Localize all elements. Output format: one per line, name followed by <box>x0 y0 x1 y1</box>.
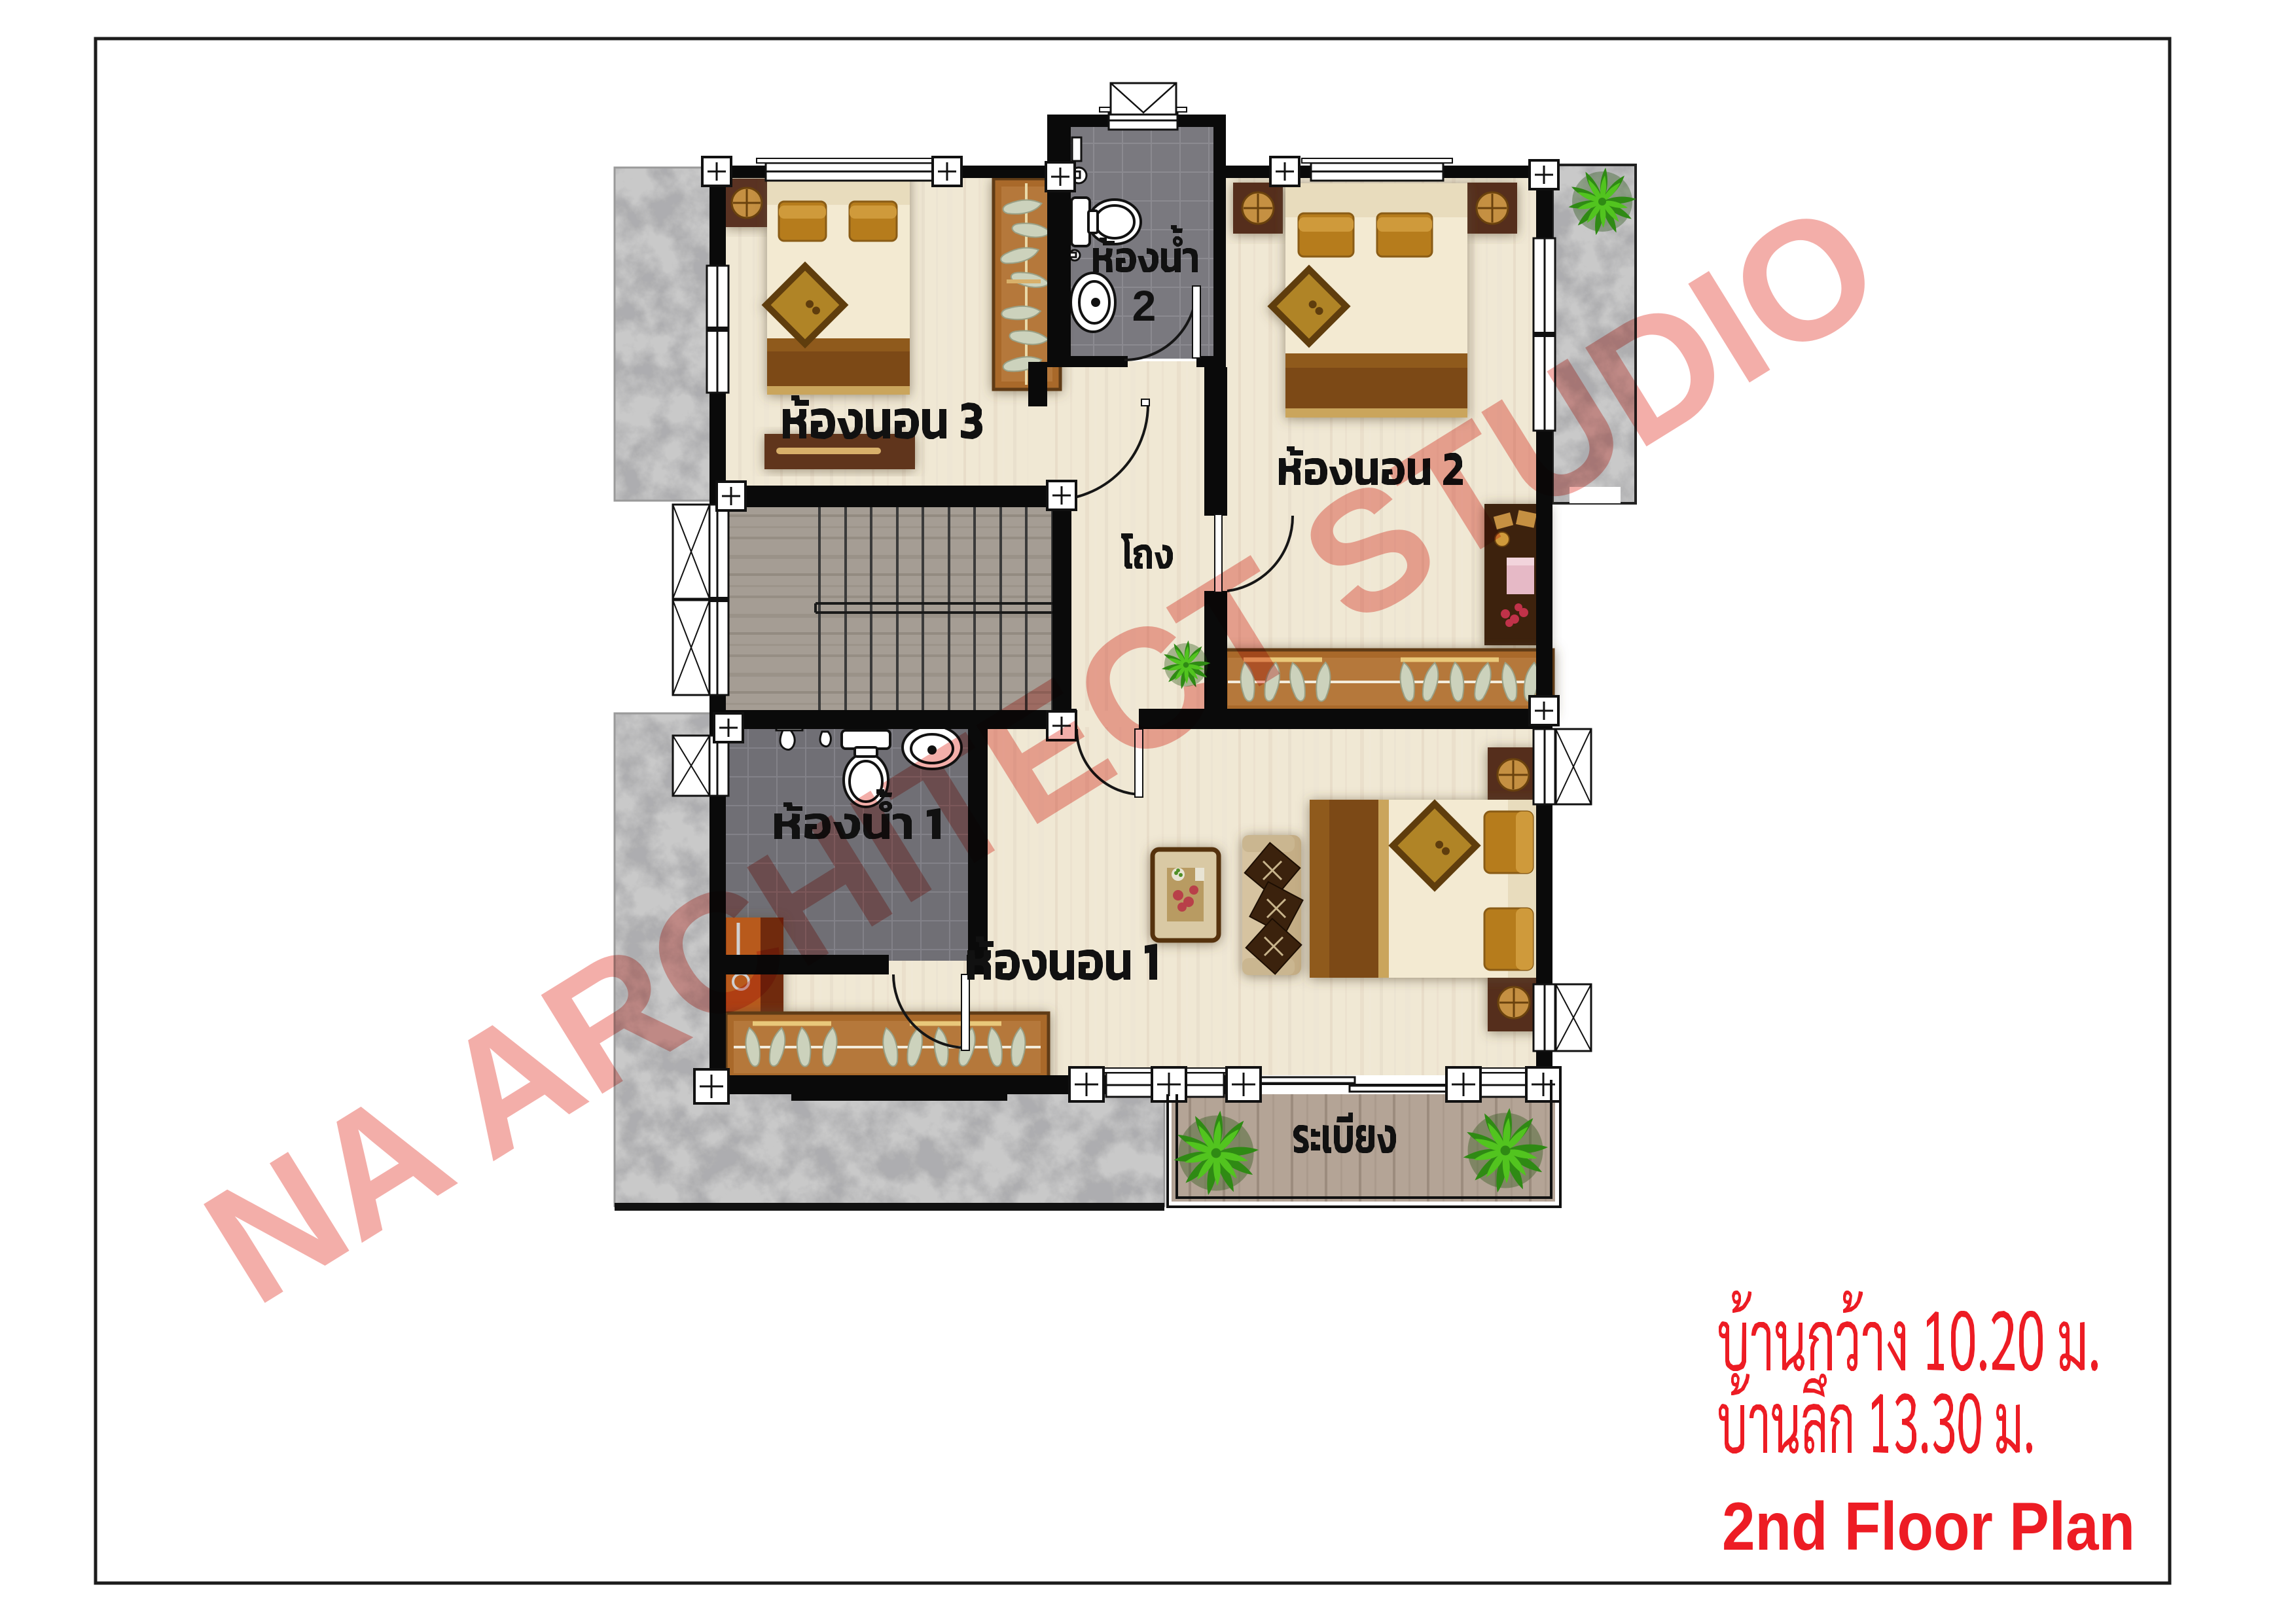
svg-text:2nd Floor Plan: 2nd Floor Plan <box>1722 1489 2135 1565</box>
svg-text:2: 2 <box>1132 281 1157 330</box>
